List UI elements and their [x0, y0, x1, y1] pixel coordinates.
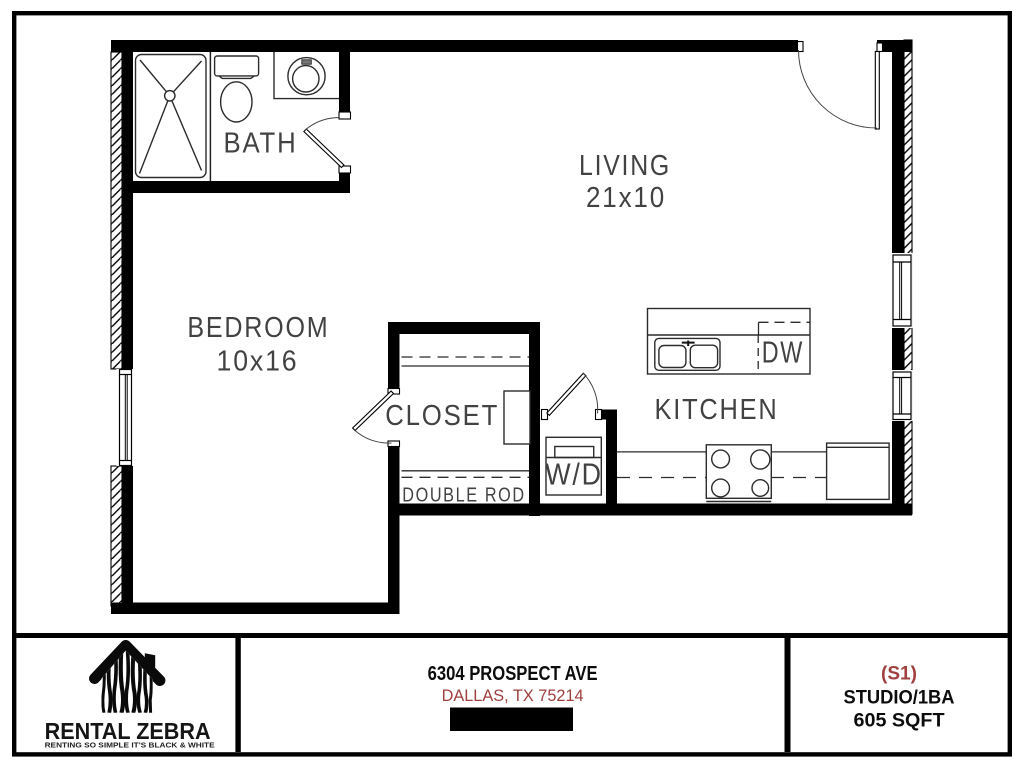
- svg-text:DALLAS, TX 75214: DALLAS, TX 75214: [442, 686, 584, 705]
- svg-text:21x10: 21x10: [586, 182, 666, 214]
- svg-text:KITCHEN: KITCHEN: [655, 394, 779, 426]
- svg-text:BATH: BATH: [224, 127, 298, 159]
- svg-text:LIVING: LIVING: [579, 150, 671, 182]
- svg-text:W/D: W/D: [545, 458, 603, 492]
- svg-text:STUDIO/1BA: STUDIO/1BA: [844, 687, 955, 709]
- svg-text:DOUBLE ROD: DOUBLE ROD: [402, 484, 526, 506]
- svg-text:CLOSET: CLOSET: [385, 400, 499, 432]
- svg-text:DW: DW: [762, 336, 804, 370]
- svg-text:605 SQFT: 605 SQFT: [854, 710, 945, 732]
- svg-text:10x16: 10x16: [217, 345, 299, 377]
- svg-text:(S1): (S1): [881, 664, 917, 685]
- svg-text:6304 PROSPECT AVE: 6304 PROSPECT AVE: [428, 662, 598, 685]
- svg-text:RENTING SO SIMPLE IT'S BLACK &: RENTING SO SIMPLE IT'S BLACK & WHITE: [45, 741, 215, 750]
- svg-text:BEDROOM: BEDROOM: [187, 312, 329, 344]
